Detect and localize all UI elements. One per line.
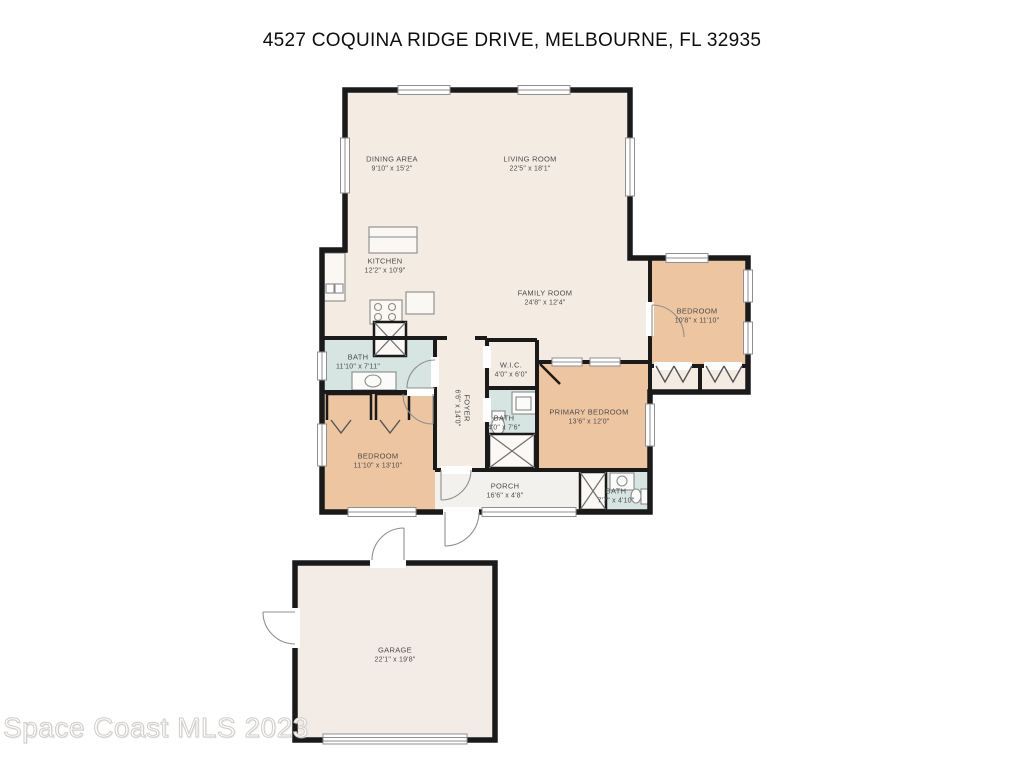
room-label-foyer: FOYER 6'6" x 14'0" [453, 390, 472, 427]
room-label-bath-hall: BATH 4'0" x 7'6" [488, 414, 521, 433]
room-name: W.I.C. [495, 361, 528, 371]
room-dims: 16'6" x 4'8" [487, 491, 524, 500]
floor-plan-page: 4527 COQUINA RIDGE DRIVE, MELBOURNE, FL … [0, 0, 1024, 768]
room-dims: 22'5" x 18'1" [503, 164, 556, 173]
room-dims: 12'2" x 10'9" [365, 266, 406, 275]
room-dims: 4'0" x 7'6" [488, 423, 521, 432]
room-dims: 7'7" x 4'10" [598, 496, 635, 505]
room-name: GARAGE [375, 646, 416, 656]
room-name: BATH [336, 353, 380, 363]
room-name: BATH [488, 414, 521, 424]
room-dims: 4'0" x 6'0" [495, 370, 528, 379]
room-label-bath-main: BATH 11'10" x 7'11" [336, 353, 380, 372]
room-name: FOYER [462, 390, 472, 427]
room-dims: 11'10" x 13'10" [354, 461, 403, 470]
room-label-porch: PORCH 16'6" x 4'8" [487, 482, 524, 501]
room-dims: 24'8" x 12'4" [518, 298, 573, 307]
room-name: BEDROOM [675, 307, 720, 317]
room-dims: 9'10" x 15'2" [366, 164, 418, 173]
room-label-family-room: FAMILY ROOM 24'8" x 12'4" [518, 289, 573, 308]
room-label-bath-porch: BATH 7'7" x 4'10" [598, 487, 635, 506]
room-label-primary-bedroom: PRIMARY BEDROOM 13'6" x 12'0" [549, 408, 628, 427]
room-label-kitchen: KITCHEN 12'2" x 10'9" [365, 257, 406, 276]
mls-watermark: Space Coast MLS 2023 [3, 712, 309, 744]
room-label-garage: GARAGE 22'1" x 19'8" [375, 646, 416, 665]
room-name: BEDROOM [354, 452, 403, 462]
room-dims: 11'10" x 7'11" [336, 362, 380, 371]
room-name: KITCHEN [365, 257, 406, 267]
floor-plan-drawing [0, 0, 1024, 768]
room-name: PORCH [487, 482, 524, 492]
room-label-living-room: LIVING ROOM 22'5" x 18'1" [503, 155, 556, 174]
room-label-wic: W.I.C. 4'0" x 6'0" [495, 361, 528, 380]
room-label-bedroom-right: BEDROOM 10'8" x 11'10" [675, 307, 720, 326]
room-fills [295, 90, 748, 740]
room-label-dining-area: DINING AREA 9'10" x 15'2" [366, 155, 418, 174]
room-name: LIVING ROOM [503, 155, 556, 165]
room-dims: 13'6" x 12'0" [549, 417, 628, 426]
room-dims: 10'8" x 11'10" [675, 316, 720, 325]
room-name: PRIMARY BEDROOM [549, 408, 628, 418]
room-name: BATH [598, 487, 635, 497]
room-dims: 22'1" x 19'8" [375, 655, 416, 664]
room-name: DINING AREA [366, 155, 418, 165]
room-dims: 6'6" x 14'0" [453, 390, 462, 427]
room-label-bedroom-left: BEDROOM 11'10" x 13'10" [354, 452, 403, 471]
room-name: FAMILY ROOM [518, 289, 573, 299]
